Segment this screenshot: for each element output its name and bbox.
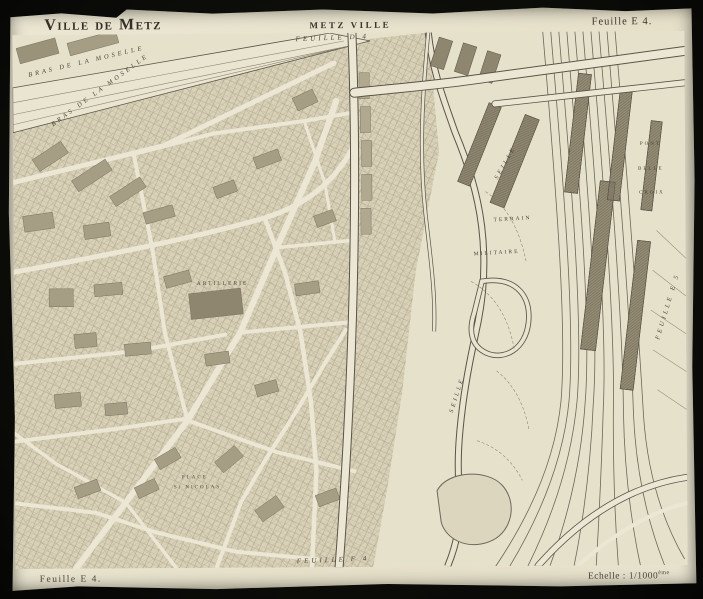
label-place: PLACE [182, 475, 208, 480]
scale-label: Echelle : 1/1000ème [588, 570, 670, 582]
sheet-number-top: Feuille E 4. [592, 16, 653, 27]
scale-text: Echelle : 1/1000 [588, 571, 658, 581]
label-croix: CROIX [639, 190, 665, 195]
map-paper: Ville de Metz METZ VILLE Feuille E 4. [6, 5, 698, 592]
map-canvas: FEUILLE D 4 FEUILLE F 4 FEUILLE E 5 BRAS… [12, 31, 687, 569]
map-drawing: FEUILLE D 4 FEUILLE F 4 FEUILLE E 5 BRAS… [12, 31, 687, 569]
photo-background: Ville de Metz METZ VILLE Feuille E 4. [0, 0, 703, 599]
sheet-number-bottom: Feuille E 4. [40, 575, 102, 585]
label-st-nicolas: St NICOLAS [174, 485, 221, 490]
scale-superscript: ème [658, 570, 670, 576]
label-belle: BELLE [638, 167, 664, 172]
label-pont: PONT [640, 142, 661, 147]
label-artillerie: ARTILLERIE [197, 281, 249, 287]
